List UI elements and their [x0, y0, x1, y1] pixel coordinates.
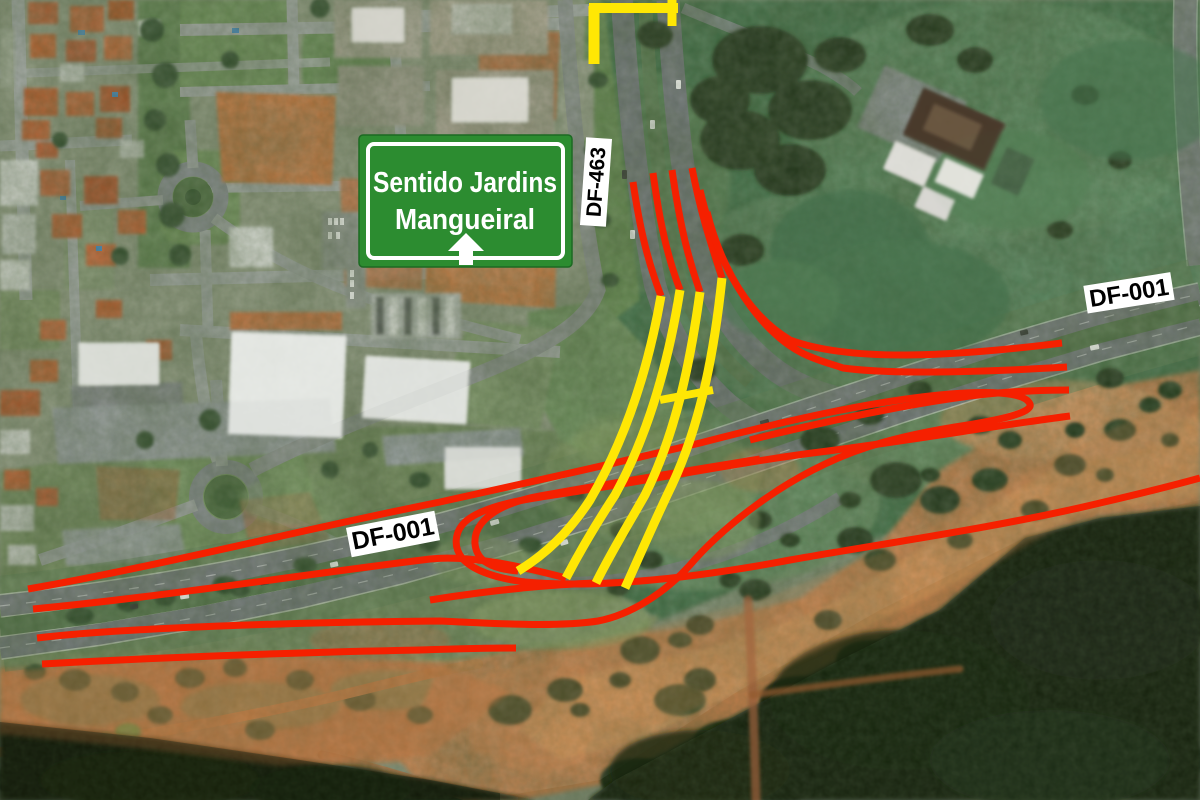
svg-text:Sentido Jardins: Sentido Jardins: [373, 167, 557, 199]
svg-text:DF-463: DF-463: [583, 146, 611, 217]
svg-text:Mangueiral: Mangueiral: [395, 204, 535, 236]
